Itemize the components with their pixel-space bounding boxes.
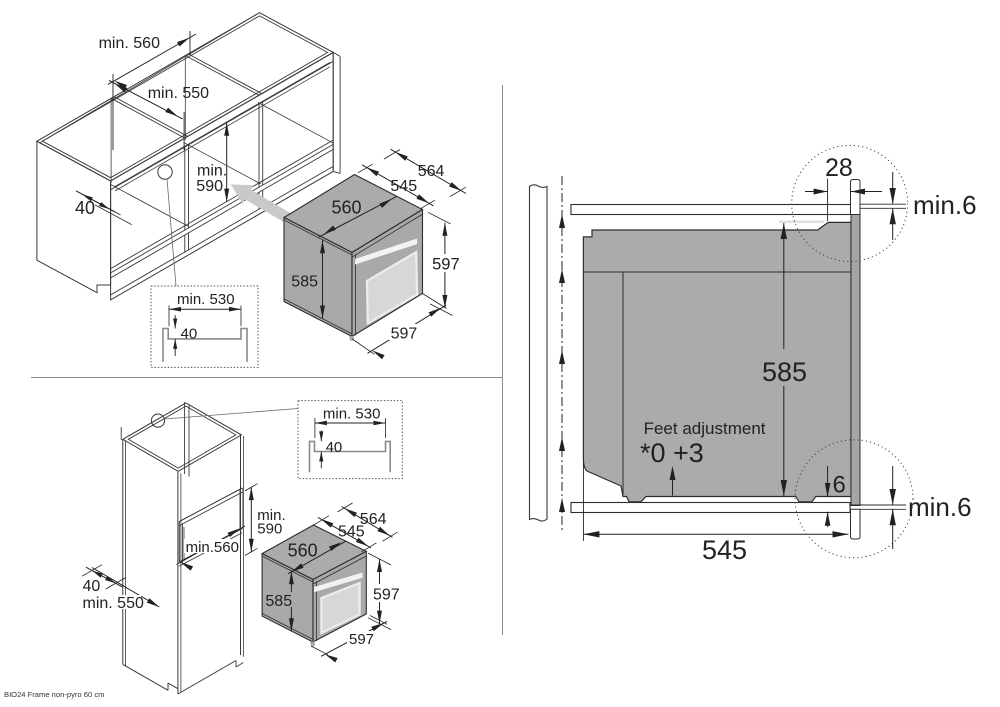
svg-text:6: 6	[833, 472, 846, 499]
svg-text:545: 545	[390, 178, 417, 195]
svg-text:min. 550: min. 550	[148, 85, 209, 102]
svg-text:min.6: min.6	[913, 190, 977, 220]
svg-text:min. 560: min. 560	[99, 35, 160, 52]
svg-text:585: 585	[762, 357, 807, 387]
svg-text:545: 545	[702, 535, 747, 565]
svg-text:40: 40	[75, 198, 95, 218]
svg-text:545: 545	[338, 523, 365, 540]
svg-text:560: 560	[288, 541, 318, 561]
svg-text:597: 597	[432, 256, 460, 274]
svg-text:min. 530: min. 530	[177, 291, 235, 308]
svg-text:597: 597	[373, 587, 400, 604]
svg-text:min.: min.	[197, 163, 227, 180]
svg-text:40: 40	[326, 439, 343, 456]
svg-text:min.560: min.560	[186, 539, 239, 556]
svg-text:BIO24 Frame non-pyro 60 cm: BIO24 Frame non-pyro 60 cm	[4, 690, 104, 699]
svg-text:585: 585	[291, 274, 318, 291]
svg-text:585: 585	[265, 593, 292, 610]
svg-text:min. 530: min. 530	[323, 405, 381, 422]
svg-text:564: 564	[418, 163, 445, 180]
svg-text:min. 550: min. 550	[83, 595, 144, 612]
svg-text:597: 597	[349, 631, 374, 648]
svg-text:*0 +3: *0 +3	[640, 438, 704, 468]
svg-text:597: 597	[391, 326, 418, 343]
svg-text:590: 590	[257, 521, 282, 538]
svg-text:40: 40	[83, 578, 101, 595]
svg-text:28: 28	[825, 154, 853, 182]
svg-text:590: 590	[196, 178, 223, 195]
svg-text:min.6: min.6	[908, 492, 972, 522]
svg-text:40: 40	[181, 326, 198, 343]
svg-text:Feet adjustment: Feet adjustment	[644, 419, 766, 438]
svg-text:560: 560	[332, 198, 362, 218]
